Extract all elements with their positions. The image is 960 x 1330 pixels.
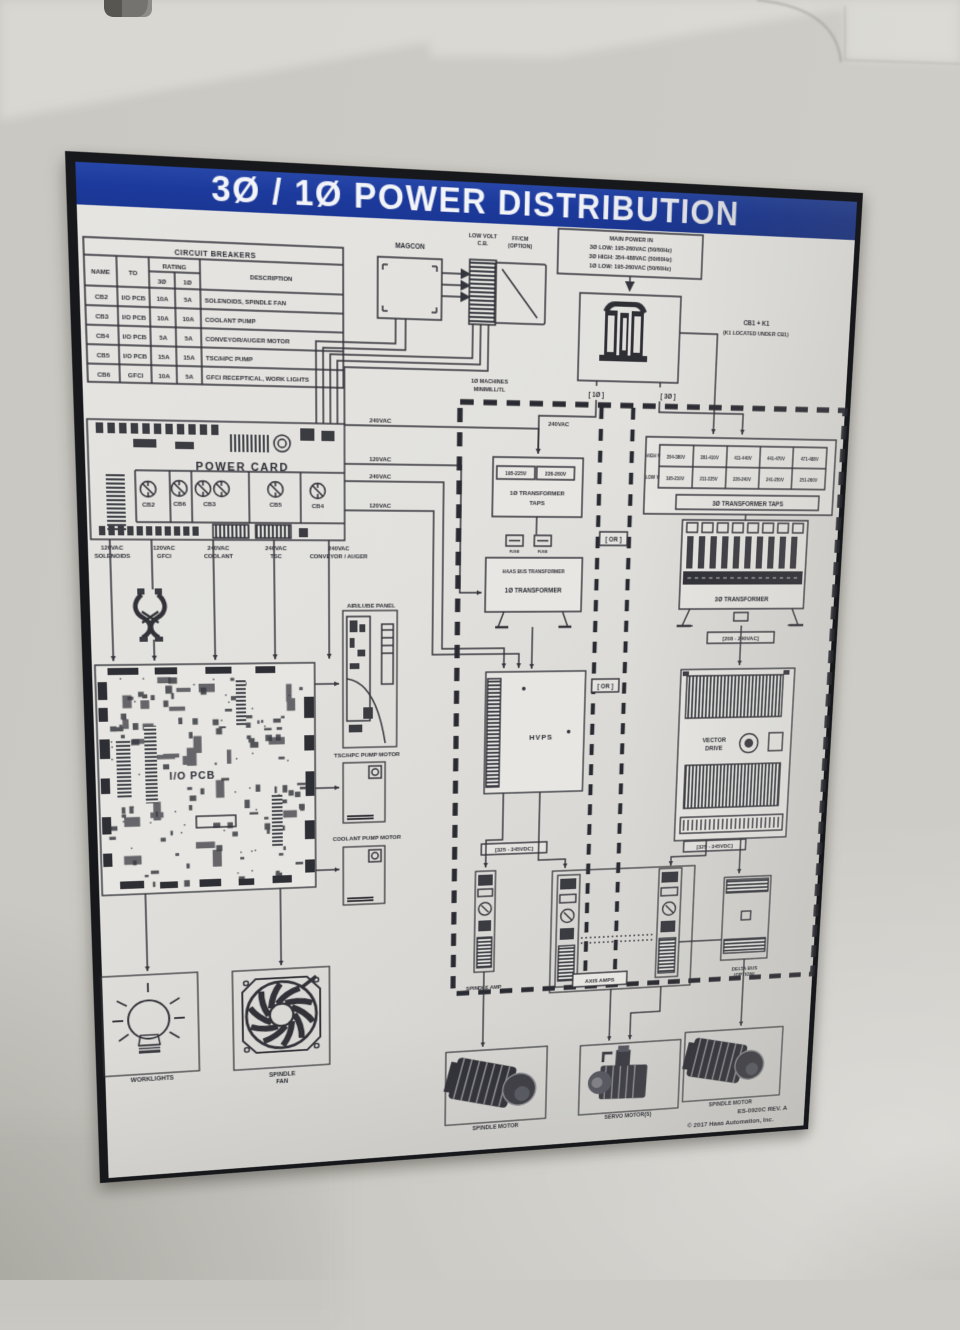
svg-text:[ 1Ø ]: [ 1Ø ] <box>588 391 604 399</box>
svg-text:15A: 15A <box>183 355 195 362</box>
svg-text:I/O PCB: I/O PCB <box>122 314 146 321</box>
svg-text:CB2: CB2 <box>95 294 108 301</box>
svg-text:CB4: CB4 <box>96 333 109 340</box>
svg-text:CB4: CB4 <box>312 504 324 510</box>
svg-text:TSC: TSC <box>270 554 282 560</box>
svg-text:C.B.: C.B. <box>477 240 488 247</box>
svg-text:AIR/LUBE PANEL: AIR/LUBE PANEL <box>347 603 395 609</box>
svg-text:240VAC: 240VAC <box>369 474 391 480</box>
svg-text:240VAC: 240VAC <box>328 546 349 552</box>
svg-text:195-225V: 195-225V <box>505 472 527 478</box>
svg-text:CB3: CB3 <box>203 502 216 508</box>
svg-text:I/O PCB: I/O PCB <box>122 295 146 303</box>
svg-text:MAGCON: MAGCON <box>395 241 425 251</box>
svg-text:[ OR ]: [ OR ] <box>605 536 622 544</box>
svg-text:SOLENOIDS: SOLENOIDS <box>94 553 130 559</box>
svg-text:HAAS BUS TRANSFORMER: HAAS BUS TRANSFORMER <box>502 570 564 575</box>
svg-text:3Ø: 3Ø <box>158 279 167 286</box>
svg-text:5A: 5A <box>184 297 192 304</box>
svg-text:1Ø: 1Ø <box>183 280 192 287</box>
svg-text:10A: 10A <box>182 316 194 323</box>
svg-text:5A: 5A <box>185 336 193 343</box>
svg-text:FUSE: FUSE <box>509 549 519 553</box>
svg-text:CB6: CB6 <box>173 501 186 507</box>
svg-text:CONVEYOR / AUGER: CONVEYOR / AUGER <box>310 554 368 560</box>
svg-text:CB3: CB3 <box>95 314 108 321</box>
svg-text:TSC/HPC PUMP: TSC/HPC PUMP <box>206 356 253 364</box>
svg-text:226-260V: 226-260V <box>545 472 566 477</box>
svg-text:GFCI: GFCI <box>157 553 172 559</box>
svg-text:GFCI: GFCI <box>128 373 143 380</box>
svg-text:COOLANT: COOLANT <box>204 554 233 560</box>
svg-text:1Ø TRANSFORMER: 1Ø TRANSFORMER <box>510 491 565 498</box>
svg-text:FF/CM: FF/CM <box>512 236 529 243</box>
svg-text:240VAC: 240VAC <box>369 418 391 425</box>
svg-text:TAPS: TAPS <box>529 501 545 507</box>
svg-text:CB5: CB5 <box>270 502 282 508</box>
svg-text:I/O PCB: I/O PCB <box>123 334 147 341</box>
svg-text:240VAC: 240VAC <box>265 546 287 552</box>
svg-text:(OPTION): (OPTION) <box>508 243 532 250</box>
svg-text:I/O PCB: I/O PCB <box>123 353 147 360</box>
svg-text:TO: TO <box>128 270 137 277</box>
svg-text:15A: 15A <box>158 354 170 361</box>
svg-text:HVPS: HVPS <box>529 733 553 742</box>
svg-text:CB5: CB5 <box>97 353 110 360</box>
svg-text:1Ø TRANSFORMER: 1Ø TRANSFORMER <box>505 587 563 595</box>
svg-text:LOW VOLT: LOW VOLT <box>469 233 498 241</box>
svg-text:240VAC: 240VAC <box>548 421 569 428</box>
svg-text:RATING: RATING <box>162 264 186 272</box>
svg-text:I/O PCB: I/O PCB <box>169 769 215 782</box>
svg-text:120VAC: 120VAC <box>153 545 176 551</box>
svg-text:120VAC: 120VAC <box>369 457 391 464</box>
svg-text:CB2: CB2 <box>142 502 155 508</box>
svg-text:10A: 10A <box>158 373 170 380</box>
svg-text:120VAC: 120VAC <box>101 545 124 551</box>
svg-text:120VAC: 120VAC <box>369 503 391 509</box>
svg-text:10A: 10A <box>157 296 169 303</box>
svg-text:MINIMILL/TL: MINIMILL/TL <box>474 386 506 393</box>
svg-text:NAME: NAME <box>91 269 111 276</box>
svg-text:10A: 10A <box>157 316 169 323</box>
svg-text:CB6: CB6 <box>97 372 110 379</box>
svg-text:[ OR ]: [ OR ] <box>597 682 614 690</box>
svg-text:1Ø MACHINES: 1Ø MACHINES <box>471 378 508 385</box>
svg-text:FUSE: FUSE <box>538 549 548 553</box>
svg-text:240VAC: 240VAC <box>207 546 229 552</box>
svg-text:5A: 5A <box>159 335 167 342</box>
svg-text:5A: 5A <box>185 374 193 381</box>
